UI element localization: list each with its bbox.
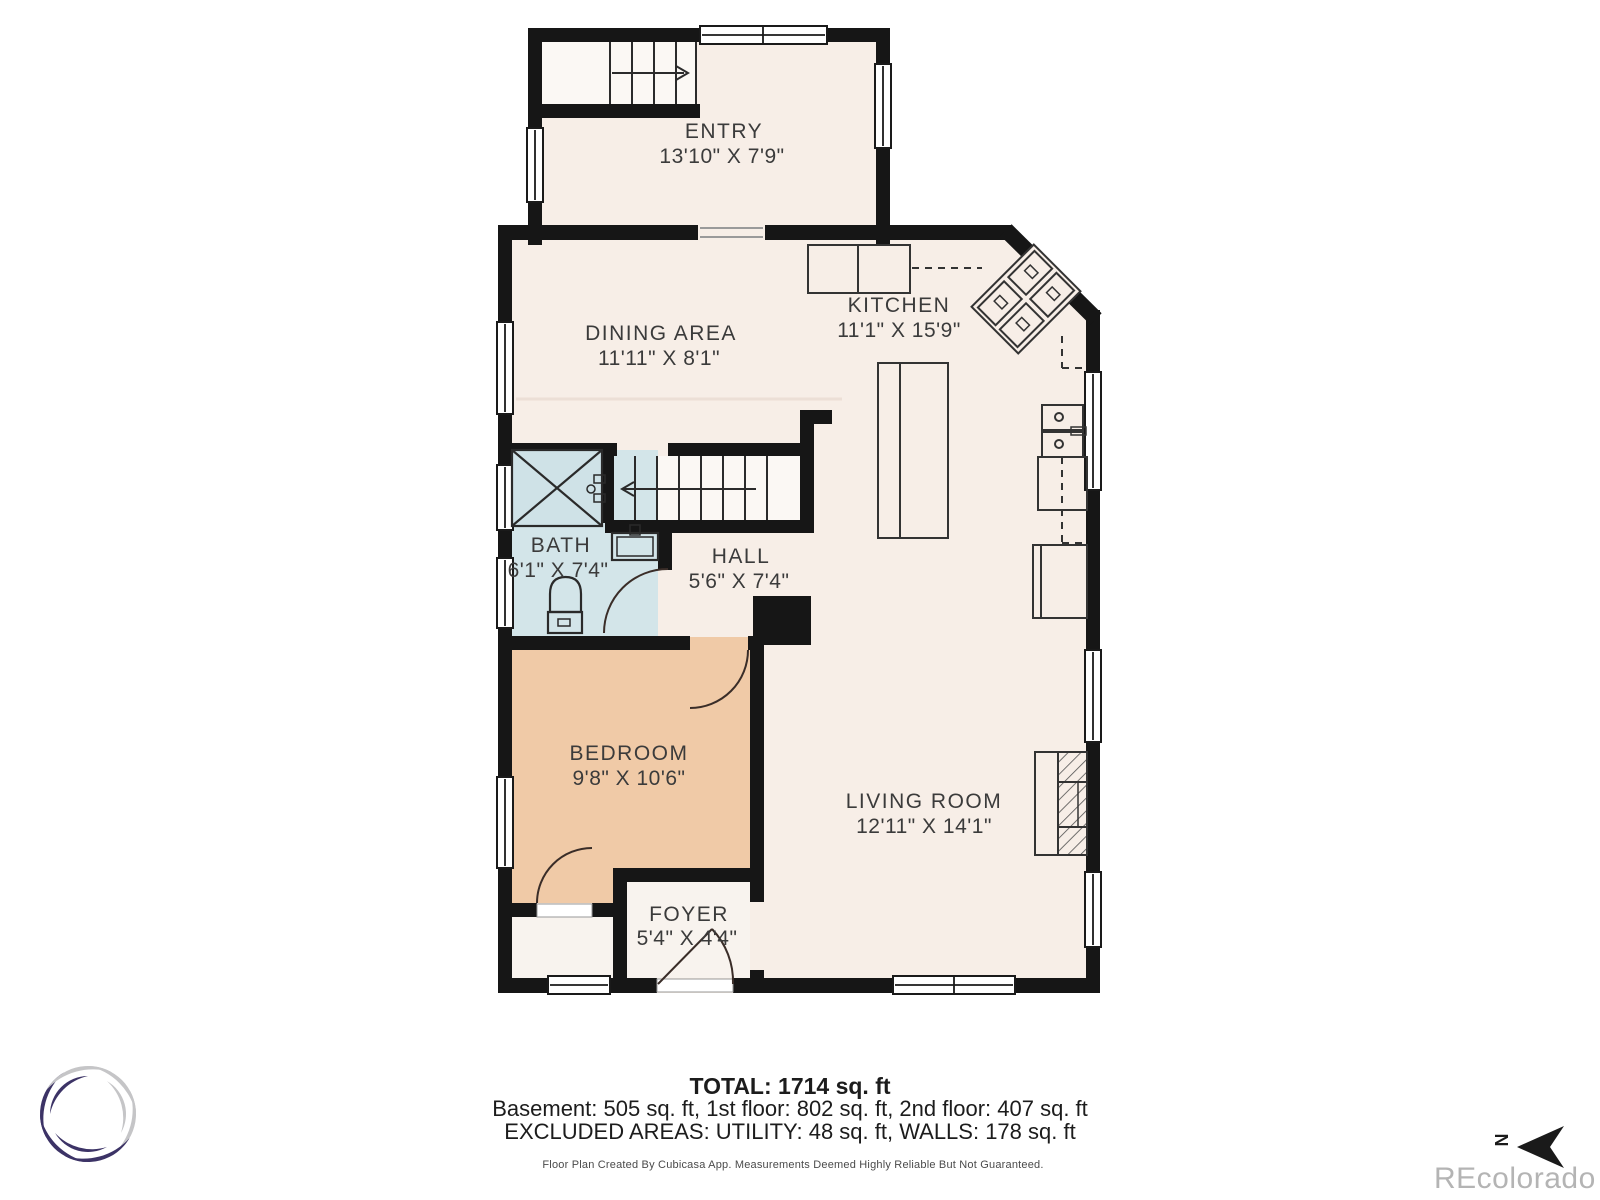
window bbox=[497, 777, 513, 868]
window bbox=[893, 976, 1015, 994]
total-area: TOTAL: 1714 sq. ft bbox=[0, 1074, 1580, 1098]
room-dims-bath: 6'1" X 7'4" bbox=[508, 559, 609, 582]
floor-plan-page: ENTRY 13'10" X 7'9" DINING AREA 11'11" X… bbox=[0, 0, 1600, 1200]
closet-floor bbox=[512, 912, 613, 978]
room-label-entry: ENTRY bbox=[685, 120, 763, 143]
area-summary: TOTAL: 1714 sq. ft Basement: 505 sq. ft,… bbox=[0, 1074, 1580, 1143]
window bbox=[497, 322, 513, 414]
window bbox=[875, 64, 891, 148]
floor-areas-line: Basement: 505 sq. ft, 1st floor: 802 sq.… bbox=[0, 1098, 1580, 1121]
window bbox=[1085, 650, 1101, 742]
floor-plan: ENTRY 13'10" X 7'9" DINING AREA 11'11" X… bbox=[0, 0, 1600, 1200]
window bbox=[497, 465, 513, 530]
room-dims-kitchen: 11'1" X 15'9" bbox=[837, 319, 961, 342]
room-dims-entry: 13'10" X 7'9" bbox=[659, 145, 784, 168]
excluded-areas-line: EXCLUDED AREAS: UTILITY: 48 sq. ft, WALL… bbox=[0, 1121, 1580, 1144]
room-label-bath: BATH bbox=[531, 534, 591, 557]
room-dims-living: 12'11" X 14'1" bbox=[856, 815, 992, 838]
room-dims-bedroom: 9'8" X 10'6" bbox=[573, 767, 686, 790]
room-dims-foyer: 5'4" X 4'4" bbox=[637, 927, 738, 950]
room-label-foyer: FOYER bbox=[649, 903, 729, 926]
room-dims-dining: 11'11" X 8'1" bbox=[598, 347, 720, 370]
room-dims-hall: 5'6" X 7'4" bbox=[689, 570, 790, 593]
room-label-bedroom: BEDROOM bbox=[569, 742, 688, 765]
room-label-hall: HALL bbox=[712, 545, 771, 568]
disclaimer-text: Floor Plan Created By Cubicasa App. Meas… bbox=[0, 1159, 1586, 1171]
room-label-living: LIVING ROOM bbox=[846, 790, 1003, 813]
window bbox=[527, 128, 543, 202]
room-label-dining: DINING AREA bbox=[585, 322, 737, 345]
cased-opening bbox=[698, 224, 765, 241]
watermark-text: REcolorado bbox=[1434, 1162, 1596, 1196]
room-label-kitchen: KITCHEN bbox=[848, 294, 951, 317]
window bbox=[700, 26, 827, 44]
window bbox=[1085, 872, 1101, 947]
shower bbox=[512, 450, 605, 526]
window bbox=[548, 976, 610, 994]
